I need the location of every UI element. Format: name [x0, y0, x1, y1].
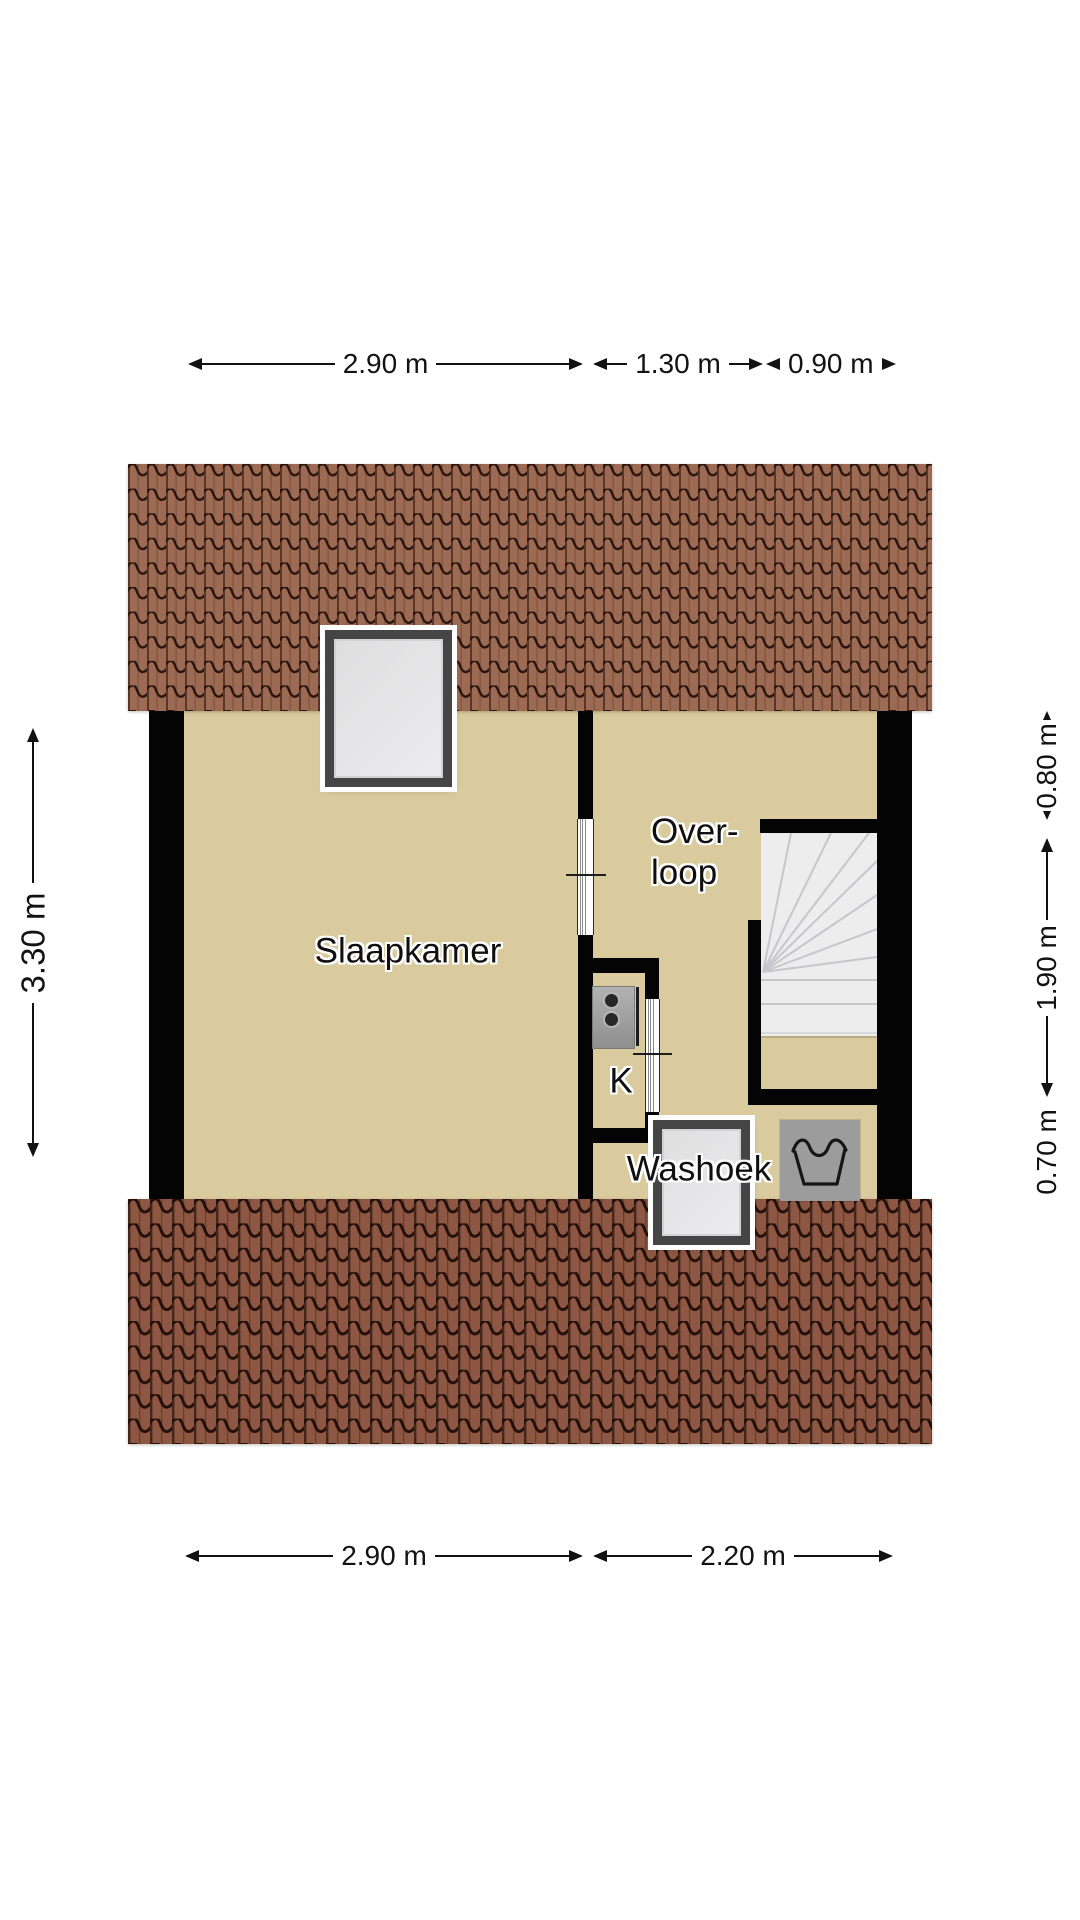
wash-symbol: [780, 1120, 860, 1201]
staircase-treads: [761, 833, 877, 1036]
arrow-down-icon: [1043, 811, 1051, 820]
stairs-landing: [761, 1036, 877, 1091]
dim-line: [729, 363, 749, 365]
dim-left-330: 3.30 m: [25, 728, 41, 1157]
room-label-slaapkamer: Slaapkamer: [315, 931, 502, 972]
dim-line: [199, 1555, 333, 1557]
wall-closet-right-upper: [645, 958, 659, 999]
dim-label: 2.20 m: [692, 1542, 794, 1570]
dim-label: 0.90 m: [780, 350, 882, 378]
arrow-down-icon: [1041, 1083, 1053, 1097]
dim-label: 0.70 m: [1033, 1109, 1061, 1195]
dim-right-080: 0.80 m: [1039, 711, 1055, 820]
wall-outer-right: [877, 711, 912, 1199]
wall-stairs-left: [748, 920, 761, 1105]
wall-closet-bottom: [578, 1128, 659, 1143]
roof-top: [128, 464, 932, 711]
arrow-down-icon: [27, 1143, 39, 1157]
wall-stairs-top: [760, 819, 877, 833]
dim-right-190: 1.90 m: [1039, 838, 1055, 1097]
arrow-up-icon: [1043, 711, 1051, 720]
dim-line: [32, 742, 34, 883]
arrow-right-icon: [569, 1550, 583, 1562]
boiler-icon: [592, 986, 635, 1049]
dim-line: [607, 1555, 692, 1557]
dim-line: [794, 1555, 879, 1557]
room-label-kast: K: [609, 1061, 632, 1102]
skylight-window: [325, 630, 452, 787]
boiler-knob-icon: [603, 1011, 620, 1028]
arrow-right-icon: [749, 358, 763, 370]
roof-bottom: [128, 1199, 932, 1444]
room-label-overloop-line1: Over-: [651, 811, 739, 852]
arrow-left-icon: [188, 358, 202, 370]
wall-stairs-bottom: [748, 1089, 877, 1105]
window-pane: [334, 639, 443, 778]
room-label-washoek: Washoek: [627, 1149, 772, 1190]
dim-top-290: 2.90 m: [188, 356, 583, 372]
arrow-left-icon: [766, 358, 780, 370]
wall-middle-lower: [578, 935, 593, 1199]
dim-label-wrap: 1.90 m: [1039, 920, 1055, 1016]
dim-label: 3.30 m: [17, 892, 50, 993]
arrow-up-icon: [1041, 838, 1053, 852]
door-threshold-line: [633, 1053, 672, 1055]
dim-line: [1046, 1016, 1048, 1084]
arrow-left-icon: [593, 358, 607, 370]
door-closet: [645, 999, 660, 1112]
dim-line: [436, 363, 569, 365]
arrow-right-icon: [882, 358, 896, 370]
dim-line: [435, 1555, 569, 1557]
dim-label: 1.90 m: [1033, 925, 1061, 1011]
door-slaapkamer-overloop: [577, 819, 594, 935]
dim-line: [607, 363, 627, 365]
door-threshold-line: [566, 874, 606, 876]
dim-top-130: 1.30 m: [593, 356, 763, 372]
roof-tile-pattern: [128, 464, 932, 711]
dim-label-wrap: 0.80 m: [1039, 720, 1055, 811]
dim-label: 0.80 m: [1033, 723, 1061, 809]
room-label-overloop: Over- loop: [651, 811, 739, 893]
arrow-left-icon: [593, 1550, 607, 1562]
wall-middle-upper: [578, 711, 593, 819]
staircase: [761, 833, 877, 1036]
dim-right-070: 0.70 m: [1039, 1105, 1055, 1199]
dim-label: 2.90 m: [333, 1542, 435, 1570]
closet-door-line: [636, 987, 639, 1046]
dim-label: 2.90 m: [335, 350, 437, 378]
dim-label: 1.30 m: [627, 350, 729, 378]
dim-label-wrap: 3.30 m: [25, 883, 41, 1003]
dim-bottom-220: 2.20 m: [593, 1548, 893, 1564]
room-label-overloop-line2: loop: [651, 852, 739, 893]
dim-line: [202, 363, 335, 365]
boiler-knob-icon: [603, 992, 620, 1009]
dim-top-090: 0.90 m: [766, 356, 886, 372]
arrow-up-icon: [27, 728, 39, 742]
dim-line: [32, 1003, 34, 1144]
wall-outer-left: [149, 711, 184, 1199]
arrow-right-icon: [569, 358, 583, 370]
arrow-right-icon: [879, 1550, 893, 1562]
laundry-tub-icon: [780, 1120, 860, 1201]
roof-tile-pattern: [128, 1199, 932, 1444]
dim-label-wrap: 0.70 m: [1039, 1105, 1055, 1199]
arrow-left-icon: [185, 1550, 199, 1562]
floorplan-canvas: Slaapkamer Over- loop K Washoek 2.90 m 1…: [0, 0, 1080, 1920]
dim-line: [1046, 852, 1048, 920]
dim-bottom-290: 2.90 m: [185, 1548, 583, 1564]
